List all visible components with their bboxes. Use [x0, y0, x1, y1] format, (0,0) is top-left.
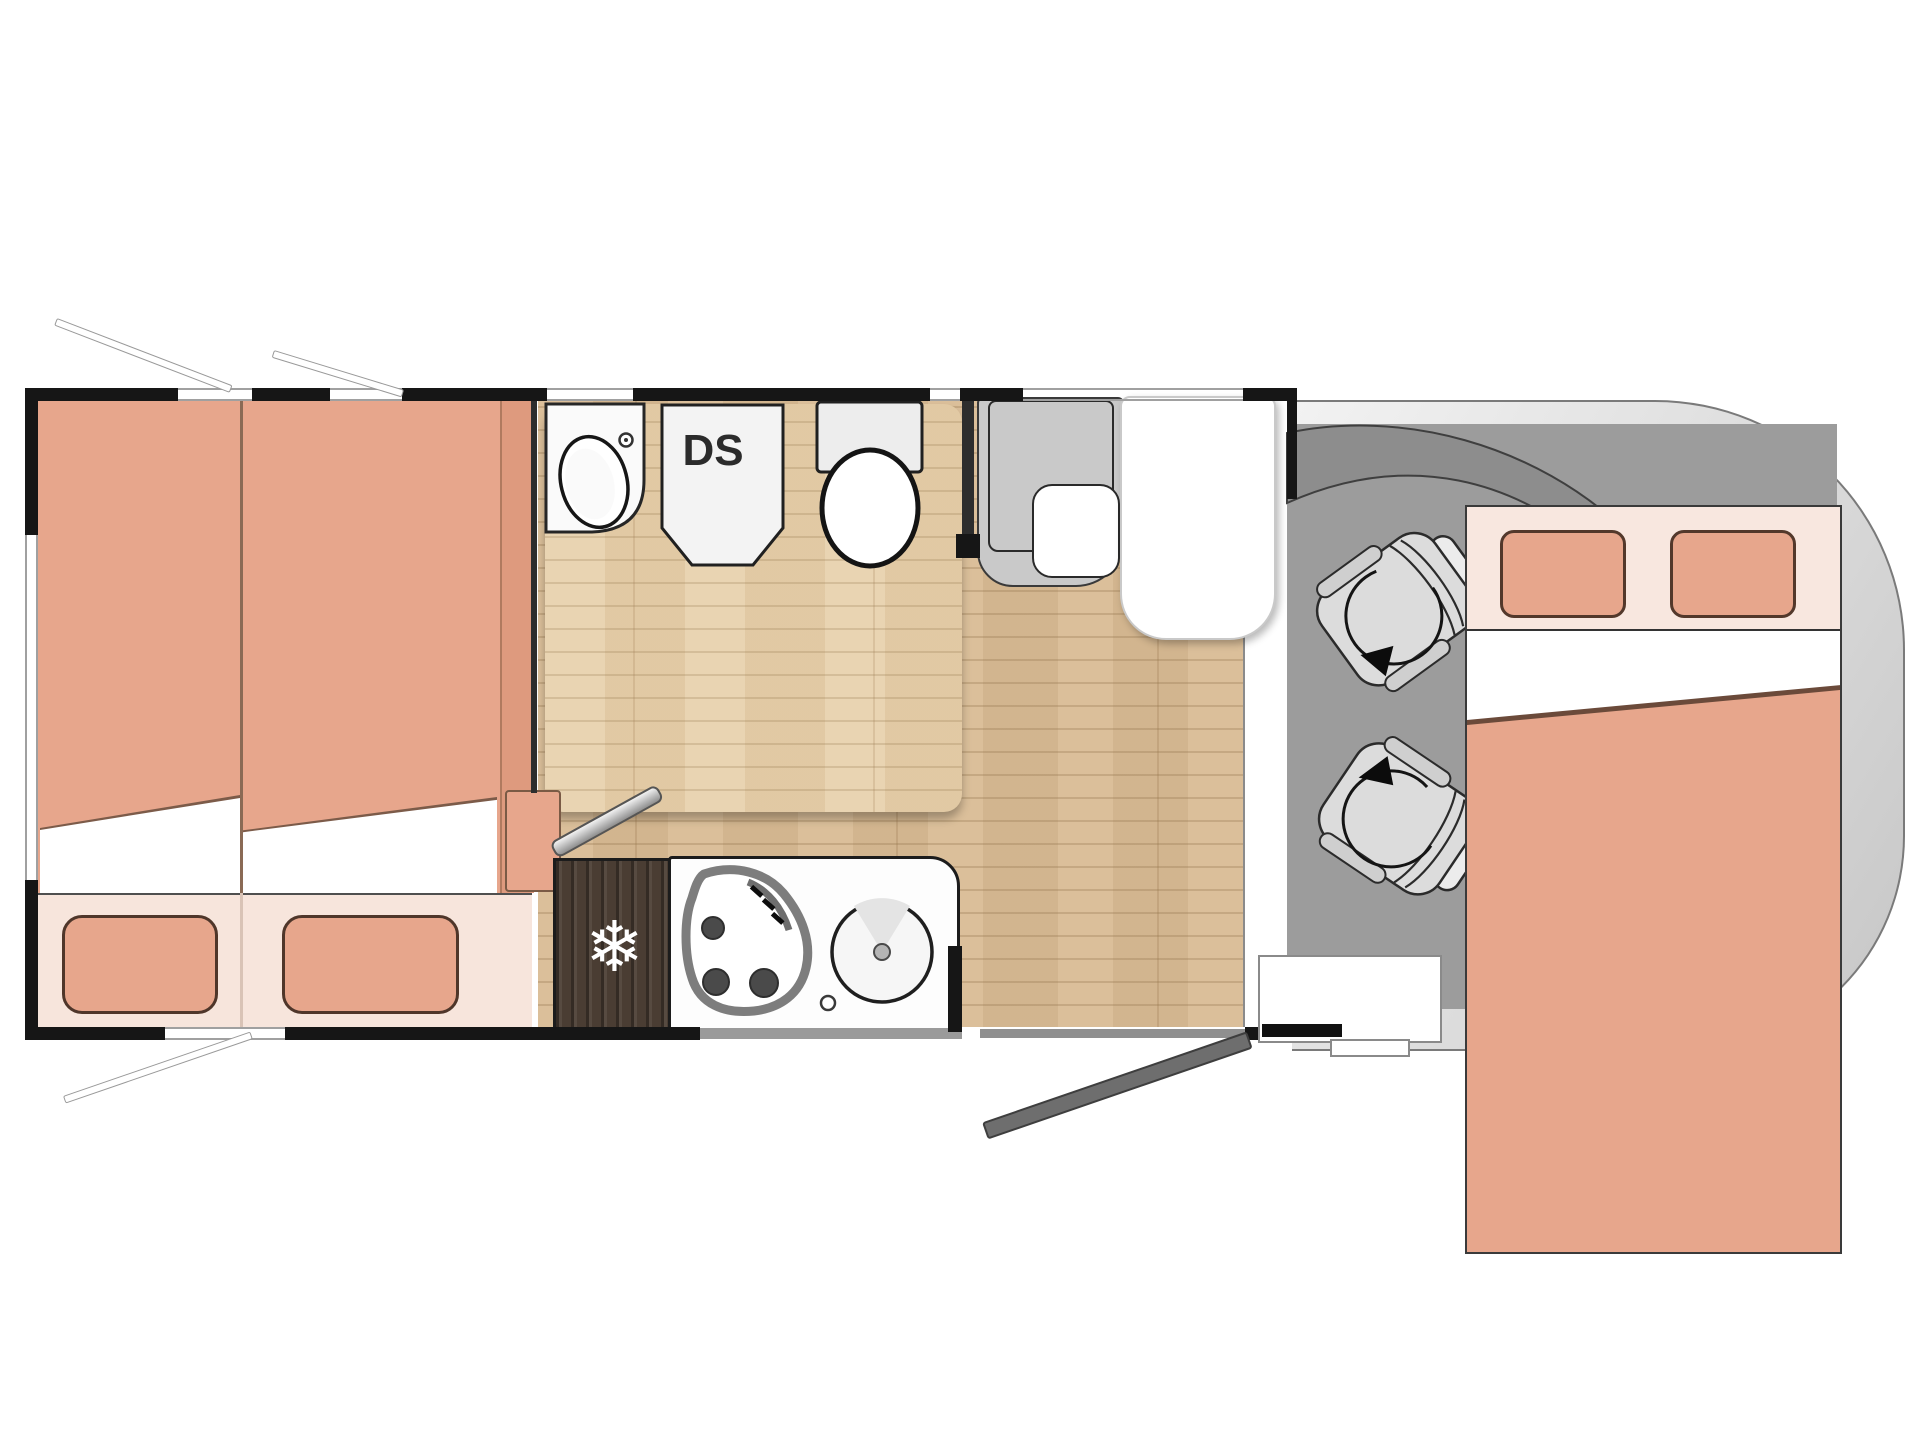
- window-opening: [547, 388, 633, 390]
- drop-down-bed: [1465, 505, 1842, 1254]
- burner: [702, 917, 724, 939]
- kitchen-fixtures: [668, 856, 960, 1032]
- sofa-cushion: [1032, 484, 1120, 578]
- bed-pillow: [1500, 530, 1626, 618]
- window-opening: [1023, 399, 1243, 401]
- wall-top-2: [252, 388, 330, 401]
- bed-pillow: [1670, 530, 1796, 618]
- wall-bottom-1: [25, 1027, 165, 1040]
- washbasin-unit: [540, 396, 660, 546]
- wall-bottom-2: [285, 1027, 700, 1040]
- wall-top-3: [402, 388, 547, 401]
- burner: [703, 969, 729, 995]
- window-opening: [930, 399, 960, 401]
- floor-plan-canvas: ❄ DS: [0, 0, 1920, 1440]
- wall-left-2: [25, 880, 38, 1040]
- wall-top-5: [960, 388, 1023, 401]
- wall-bathroom-cap: [956, 534, 980, 558]
- window-opening: [178, 388, 252, 390]
- window-opening: [25, 535, 27, 880]
- sink-tap-dot: [821, 996, 835, 1010]
- toilet-bowl: [822, 450, 918, 566]
- refrigerator: ❄: [553, 858, 676, 1036]
- wall-top-4: [633, 388, 930, 401]
- wall-bottom-door: [980, 1029, 1245, 1038]
- window-opening: [547, 399, 633, 401]
- duvet: [1467, 629, 1840, 1252]
- window-opening: [36, 535, 38, 880]
- pillow-right-bed: [282, 915, 459, 1014]
- entry-door-open: [982, 1031, 1253, 1139]
- lounge-table: [1120, 396, 1276, 640]
- window-opening: [1023, 388, 1243, 390]
- window-opening: [930, 388, 960, 390]
- wall-top-1: [25, 388, 178, 401]
- toilet: [800, 396, 940, 576]
- mattress-divider: [240, 401, 243, 893]
- shower-label: DS: [682, 426, 743, 475]
- window-opening: [178, 399, 252, 401]
- window-flap: [63, 1032, 253, 1104]
- window-opening: [165, 1027, 285, 1029]
- wall-kitchen-stub: [948, 946, 962, 1032]
- burner: [750, 969, 778, 997]
- wall-left-1: [25, 388, 38, 535]
- bed-head-divider: [240, 893, 243, 1027]
- wall-bathroom-right: [962, 401, 974, 539]
- wall-bathroom-left: [531, 401, 537, 793]
- sink-drain: [874, 944, 890, 960]
- snowflake-icon: ❄: [556, 861, 673, 1033]
- basin-tap-dot: [624, 438, 628, 442]
- entry-step-outer: [1330, 1039, 1410, 1057]
- wall-cab-stub: [1287, 401, 1297, 499]
- door-frame-bar: [1262, 1024, 1342, 1037]
- window-flap: [54, 318, 232, 393]
- pillow-left-bed: [62, 915, 218, 1014]
- hob: [686, 870, 808, 1012]
- wall-bottom-kitchen: [700, 1028, 962, 1039]
- window-opening: [330, 399, 402, 401]
- wall-top-6: [1243, 388, 1297, 401]
- shower-unit: DS: [653, 398, 793, 578]
